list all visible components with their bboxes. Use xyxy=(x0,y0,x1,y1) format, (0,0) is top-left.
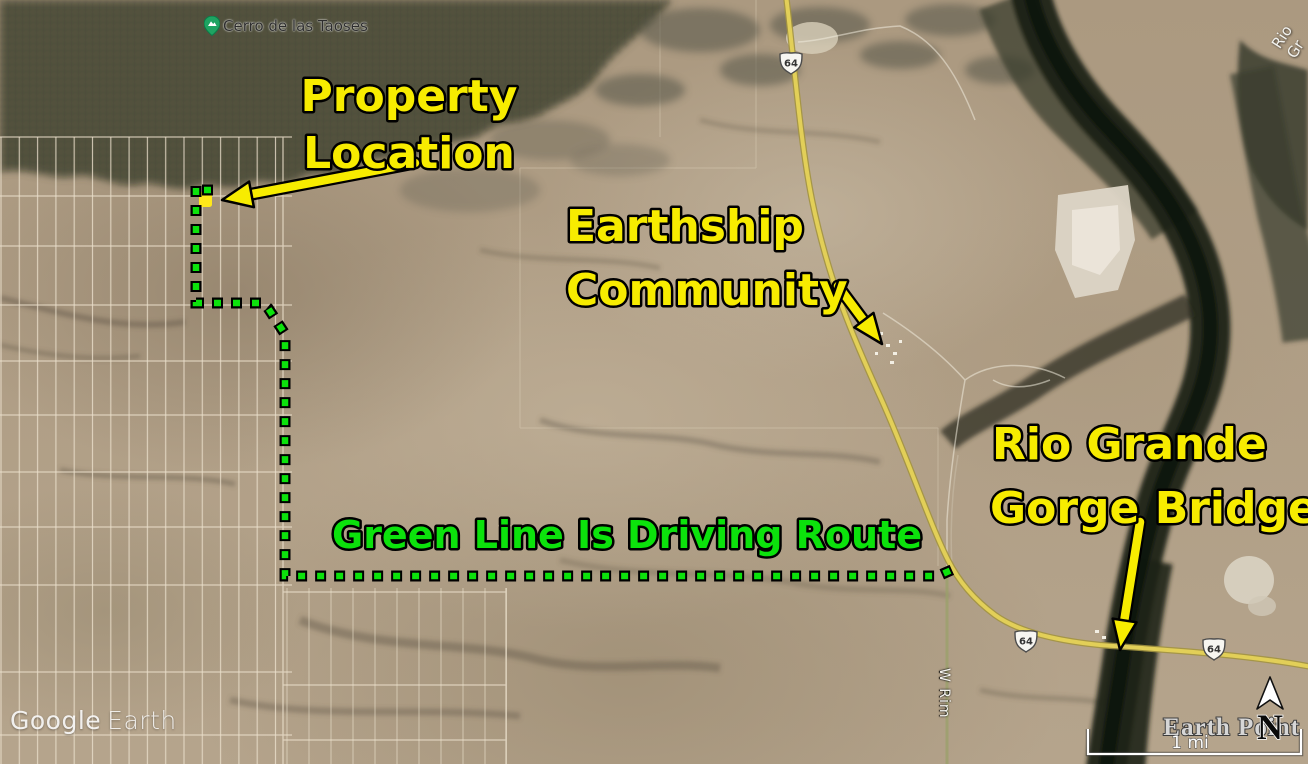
nature-pin-icon[interactable] xyxy=(204,16,220,36)
property-label-line1: Property xyxy=(301,71,518,122)
google-earth-watermark: GoogleEarth xyxy=(10,706,177,735)
north-arrow-icon: N xyxy=(1257,677,1283,747)
bridge-label-line1: Rio Grande xyxy=(992,419,1267,470)
route-64-shield: 64 xyxy=(780,53,802,74)
road-label-text: W Rim xyxy=(936,668,952,719)
watermark-google: Google xyxy=(10,706,101,735)
route-64-shield: 64 xyxy=(1015,631,1037,652)
bridge-arrow xyxy=(1113,522,1140,650)
watermark-earth: Earth xyxy=(107,706,177,735)
compass-letter: N xyxy=(1257,707,1283,747)
route-64-shield: 64 xyxy=(1203,639,1225,660)
road-label-w-rim: W Rim xyxy=(936,668,952,719)
annotation-layer: 64 64 64 Property Location Earthship Com… xyxy=(0,0,1308,764)
shield-number: 64 xyxy=(1207,645,1221,656)
earthship-label-line2: Community xyxy=(566,265,848,316)
map-viewport[interactable]: 64 64 64 Property Location Earthship Com… xyxy=(0,0,1308,764)
scale-text: 1 mi xyxy=(1171,733,1209,753)
bridge-label-line2: Gorge Bridge xyxy=(990,483,1308,534)
route-note-label: Green Line Is Driving Route xyxy=(332,513,922,557)
earthship-label-line1: Earthship xyxy=(566,201,804,252)
poi-cerro-de-las-taoses[interactable]: Cerro de las Taoses xyxy=(204,16,368,36)
poi-label-text: Cerro de las Taoses xyxy=(223,17,368,35)
shield-number: 64 xyxy=(1019,637,1033,648)
shield-number: 64 xyxy=(784,59,798,70)
property-label-line2: Location xyxy=(303,128,515,179)
